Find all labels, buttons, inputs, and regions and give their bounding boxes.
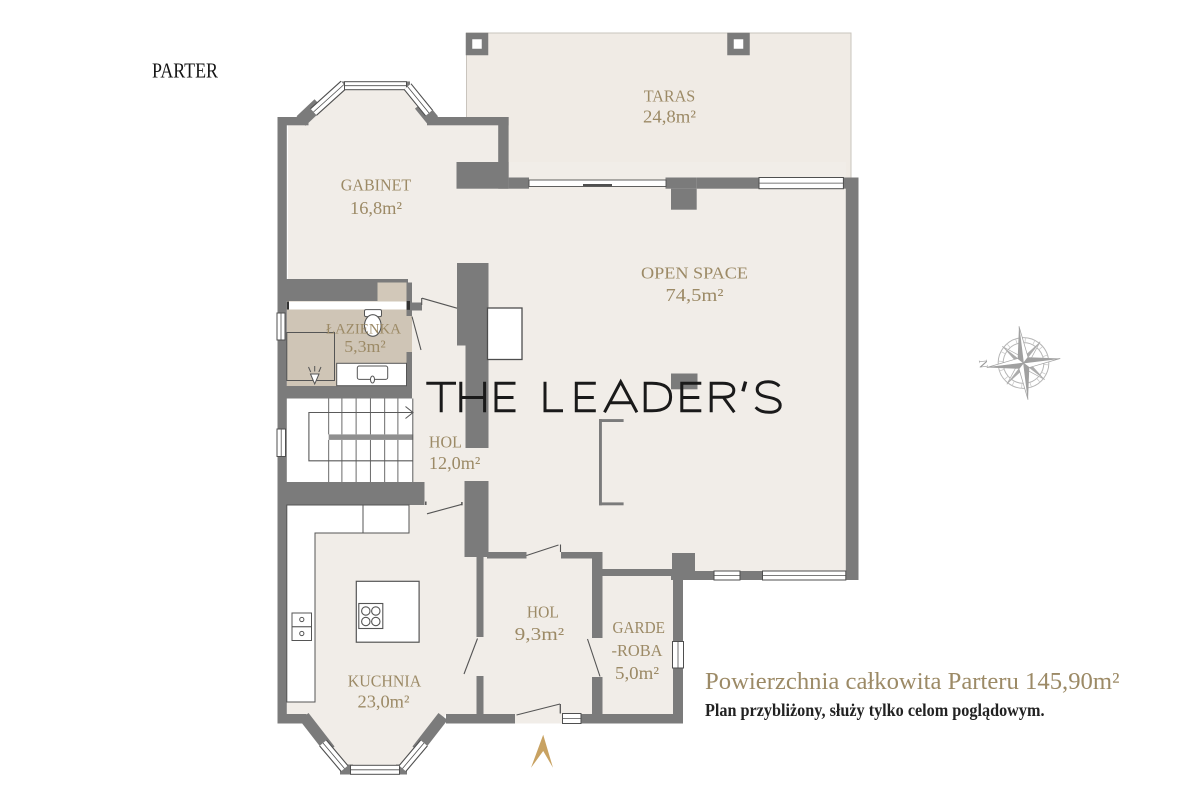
svg-text:HOL: HOL: [527, 603, 559, 622]
svg-text:KUCHNIA: KUCHNIA: [348, 672, 422, 691]
svg-text:GABINET: GABINET: [341, 176, 412, 195]
svg-text:TARAS: TARAS: [644, 87, 696, 106]
svg-text:Powierzchnia całkowita Parteru: Powierzchnia całkowita Parteru 145,90m²: [705, 668, 1120, 695]
svg-text:16,8m²: 16,8m²: [350, 198, 402, 218]
svg-text:5,0m²: 5,0m²: [615, 663, 659, 683]
svg-text:ŁAZIENKA: ŁAZIENKA: [326, 322, 402, 338]
svg-text:12,0m²: 12,0m²: [429, 453, 481, 473]
svg-text:74,5m²: 74,5m²: [666, 285, 724, 305]
svg-text:GARDE: GARDE: [612, 618, 665, 637]
svg-text:PARTER: PARTER: [152, 59, 218, 83]
svg-text:9,3m²: 9,3m²: [515, 624, 565, 644]
svg-text:24,8m²: 24,8m²: [643, 107, 696, 127]
svg-text:-ROBA: -ROBA: [612, 641, 664, 660]
svg-text:HOL: HOL: [429, 433, 462, 452]
svg-text:OPEN SPACE: OPEN SPACE: [641, 264, 748, 283]
svg-text:5,3m²: 5,3m²: [344, 337, 386, 356]
svg-text:Plan przybliżony, służy tylko: Plan przybliżony, służy tylko celom pogl…: [705, 700, 1045, 720]
svg-text:23,0m²: 23,0m²: [358, 692, 410, 712]
